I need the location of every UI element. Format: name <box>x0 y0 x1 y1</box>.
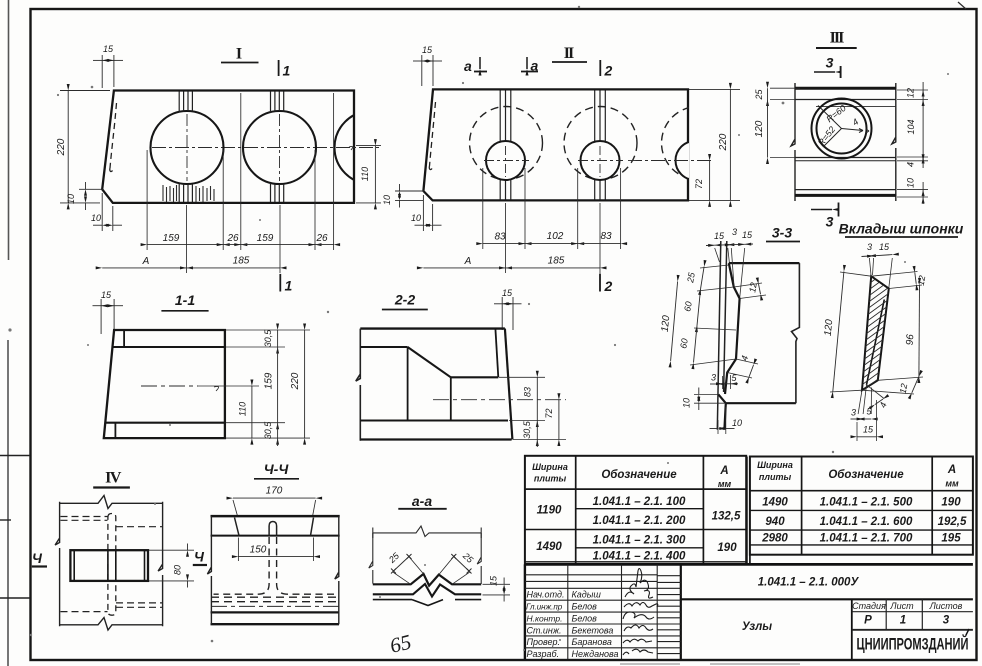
svg-text:25: 25 <box>685 271 697 285</box>
svg-text:12: 12 <box>906 88 916 98</box>
svg-text:мм: мм <box>945 479 959 489</box>
svg-text:220: 220 <box>56 138 67 156</box>
svg-text:83: 83 <box>600 231 612 242</box>
svg-text:Листов: Листов <box>929 601 963 611</box>
svg-text:26: 26 <box>315 233 328 244</box>
svg-text:Гл.инж.пр: Гл.инж.пр <box>526 603 563 612</box>
svg-text:II: II <box>564 45 574 62</box>
svg-text:3: 3 <box>711 373 716 383</box>
svg-text:25: 25 <box>754 89 764 101</box>
svg-text:ЦНИИПРОМЗДАНИЙ: ЦНИИПРОМЗДАНИЙ <box>857 635 969 654</box>
svg-text:4: 4 <box>739 355 750 362</box>
svg-text:1.041.1 – 2.1. 500: 1.041.1 – 2.1. 500 <box>820 497 913 509</box>
svg-text:2-2: 2-2 <box>394 292 415 308</box>
svg-text:15: 15 <box>422 45 433 55</box>
svg-text:III: III <box>830 30 844 47</box>
svg-text:220: 220 <box>290 372 301 390</box>
svg-text:30,5: 30,5 <box>522 420 532 439</box>
svg-text:132,5: 132,5 <box>712 511 741 523</box>
svg-text:120: 120 <box>660 314 673 332</box>
svg-text:Ст.инж.: Ст.инж. <box>527 625 562 635</box>
svg-text:110: 110 <box>238 402 248 416</box>
svg-text:Белов: Белов <box>572 602 598 612</box>
svg-text:1.041.1 – 2.1. 400: 1.041.1 – 2.1. 400 <box>593 551 686 563</box>
svg-text:185: 185 <box>548 256 565 267</box>
svg-text:Нежданова: Нежданова <box>572 649 619 659</box>
svg-text:120: 120 <box>754 120 765 137</box>
svg-text:Вкладыш шпонки: Вкладыш шпонки <box>839 221 964 237</box>
svg-text:2: 2 <box>604 63 613 79</box>
svg-text:83: 83 <box>494 232 506 243</box>
svg-text:1: 1 <box>900 615 906 627</box>
svg-text:170: 170 <box>266 486 283 497</box>
svg-text:15: 15 <box>502 288 513 298</box>
svg-text:185: 185 <box>233 256 250 267</box>
svg-text:А: А <box>947 464 956 476</box>
svg-text:12: 12 <box>898 383 910 395</box>
svg-text:Нач.отд.: Нач.отд. <box>527 590 565 600</box>
svg-text:Узлы: Узлы <box>742 621 772 633</box>
svg-text:Ч: Ч <box>194 549 205 565</box>
svg-text:Баранова: Баранова <box>572 637 612 647</box>
svg-text:72: 72 <box>544 408 554 418</box>
svg-text:Н.контр.: Н.контр. <box>527 614 563 624</box>
svg-text:1: 1 <box>283 63 291 79</box>
svg-text:Белов: Белов <box>572 614 598 624</box>
svg-text:плиты: плиты <box>759 472 792 482</box>
svg-text:1.041.1 – 2.1. 700: 1.041.1 – 2.1. 700 <box>820 533 913 545</box>
svg-text:1.041.1 – 2.1. 000У: 1.041.1 – 2.1. 000У <box>758 577 860 589</box>
svg-text:159: 159 <box>264 372 275 389</box>
svg-text:мм: мм <box>718 479 732 489</box>
svg-text:10: 10 <box>382 195 392 205</box>
svg-text:220: 220 <box>718 133 729 151</box>
svg-text:плиты: плиты <box>534 474 567 484</box>
svg-text:1490: 1490 <box>536 541 562 553</box>
svg-text:120: 120 <box>823 318 836 336</box>
svg-text:2: 2 <box>604 278 613 294</box>
svg-text:4: 4 <box>878 401 889 409</box>
svg-text:60: 60 <box>682 301 694 313</box>
svg-text:3: 3 <box>826 214 834 230</box>
svg-text:А: А <box>719 465 728 477</box>
svg-text:110: 110 <box>360 167 370 181</box>
svg-text:Разраб.: Разраб. <box>527 649 560 659</box>
svg-text:65: 65 <box>387 629 413 657</box>
svg-text:3: 3 <box>851 408 856 418</box>
svg-text:72: 72 <box>694 179 704 189</box>
svg-text:12: 12 <box>916 275 928 287</box>
svg-text:150: 150 <box>250 545 267 556</box>
svg-text:1.041.1 – 2.1. 300: 1.041.1 – 2.1. 300 <box>593 535 686 547</box>
svg-text:10: 10 <box>906 178 916 188</box>
svg-text:10: 10 <box>411 213 421 223</box>
svg-text:159: 159 <box>163 233 180 244</box>
svg-text:15: 15 <box>742 230 753 240</box>
svg-text:Ширина: Ширина <box>532 462 568 472</box>
svg-text:15: 15 <box>879 242 890 252</box>
svg-text:1.041.1 – 2.1. 600: 1.041.1 – 2.1. 600 <box>820 516 913 528</box>
svg-text:12: 12 <box>747 282 759 294</box>
svg-text:1490: 1490 <box>762 497 788 509</box>
svg-text:Обозначение: Обозначение <box>601 469 677 481</box>
svg-text:Кадыш: Кадыш <box>572 590 602 600</box>
svg-text:15: 15 <box>103 44 114 54</box>
svg-text:2980: 2980 <box>761 533 788 545</box>
svg-text:4: 4 <box>906 162 916 167</box>
svg-text:190: 190 <box>941 497 961 509</box>
svg-text:3: 3 <box>867 242 872 252</box>
svg-text:26: 26 <box>226 233 239 244</box>
svg-text:1.041.1 – 2.1. 200: 1.041.1 – 2.1. 200 <box>593 515 686 527</box>
svg-text:a: a <box>464 58 472 74</box>
svg-text:Бекетова: Бекетова <box>572 625 614 635</box>
svg-text:30,5: 30,5 <box>263 329 273 348</box>
svg-text:10: 10 <box>732 418 742 428</box>
svg-text:Р: Р <box>864 615 872 627</box>
svg-text:10: 10 <box>91 213 101 223</box>
svg-text:3: 3 <box>826 55 834 71</box>
svg-text:Ширина: Ширина <box>757 460 793 470</box>
svg-text:3: 3 <box>943 615 950 627</box>
svg-text:1-1: 1-1 <box>175 292 195 308</box>
svg-text:Ч-Ч: Ч-Ч <box>264 461 290 477</box>
svg-text:15: 15 <box>863 425 874 435</box>
svg-text:Стадия: Стадия <box>852 601 886 611</box>
svg-text:Обозначение: Обозначение <box>828 469 904 481</box>
svg-text:a-a: a-a <box>412 493 432 509</box>
svg-text:940: 940 <box>765 516 785 528</box>
svg-text:Провер.: Провер. <box>527 637 561 647</box>
svg-text:Лист: Лист <box>889 601 914 611</box>
svg-text:1.041.1 – 2.1. 100: 1.041.1 – 2.1. 100 <box>593 496 686 508</box>
svg-text:15: 15 <box>489 575 499 586</box>
svg-text:A: A <box>142 256 150 267</box>
svg-text:102: 102 <box>547 231 564 242</box>
svg-text:80: 80 <box>173 565 183 575</box>
svg-text:4: 4 <box>850 117 860 128</box>
svg-text:3: 3 <box>732 227 737 237</box>
svg-text:10: 10 <box>66 194 76 204</box>
svg-text:IV: IV <box>105 470 122 487</box>
svg-text:192,5: 192,5 <box>938 516 967 528</box>
svg-text:60: 60 <box>678 338 690 350</box>
svg-text:15: 15 <box>101 290 112 300</box>
svg-text:I: I <box>236 46 242 63</box>
svg-text:30,5: 30,5 <box>263 421 273 440</box>
svg-text:83: 83 <box>523 387 533 397</box>
svg-text:3-3: 3-3 <box>772 225 792 241</box>
svg-text:A: A <box>464 256 472 267</box>
svg-text:1: 1 <box>285 278 293 294</box>
svg-text:25: 25 <box>386 550 402 566</box>
svg-text:190: 190 <box>717 542 737 554</box>
svg-text:104: 104 <box>906 119 916 134</box>
svg-text:25: 25 <box>460 550 476 566</box>
svg-text:15: 15 <box>714 231 725 241</box>
svg-text:96: 96 <box>905 333 917 345</box>
svg-text:1190: 1190 <box>537 505 562 517</box>
svg-text:159: 159 <box>257 233 274 244</box>
svg-text:10: 10 <box>682 398 692 408</box>
svg-text:Ч: Ч <box>32 550 43 566</box>
svg-text:195: 195 <box>941 533 961 545</box>
